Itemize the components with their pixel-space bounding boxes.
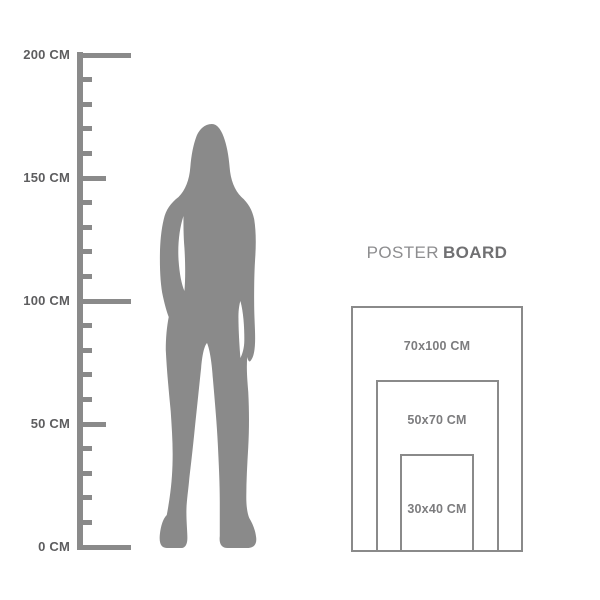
poster-size-label-70x100: 70x100 CM bbox=[367, 338, 507, 354]
poster-board-title-regular: POSTER bbox=[367, 243, 439, 262]
poster-size-label-30x40: 30x40 CM bbox=[367, 501, 507, 517]
poster-board-title-bold: BOARD bbox=[443, 243, 507, 262]
poster-size-guide: 200 CM150 CM100 CM50 CM0 CM POSTERBOARD … bbox=[0, 0, 600, 600]
poster-size-label-50x70: 50x70 CM bbox=[367, 412, 507, 428]
poster-board-title: POSTERBOARD bbox=[327, 243, 547, 263]
poster-board-group: POSTERBOARD 70x100 CM50x70 CM30x40 CM bbox=[0, 0, 600, 600]
